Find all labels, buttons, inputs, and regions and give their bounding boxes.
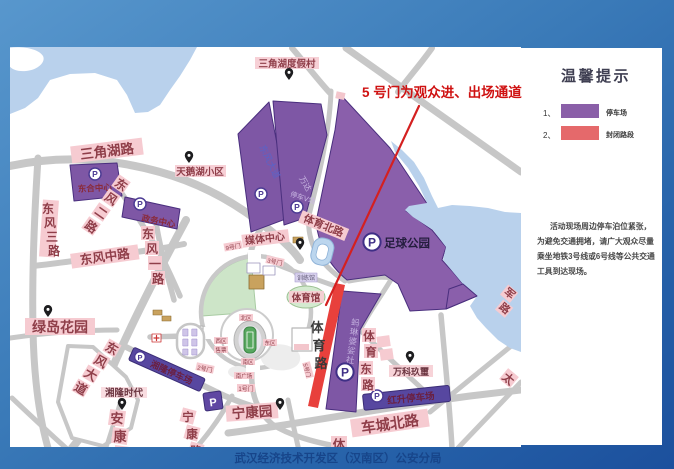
svg-text:万科玖璽: 万科玖璽 <box>392 366 429 377</box>
svg-text:西区: 西区 <box>215 338 227 345</box>
svg-text:封闭路段: 封闭路段 <box>606 130 634 139</box>
svg-text:武汉经济技术开发区（汉南区）公安分局: 武汉经济技术开发区（汉南区）公安分局 <box>235 451 442 465</box>
svg-text:温馨提示: 温馨提示 <box>561 67 631 85</box>
svg-text:5 号门为观众进、出场通道: 5 号门为观众进、出场通道 <box>362 84 522 100</box>
svg-text:天鹅湖小区: 天鹅湖小区 <box>176 166 224 178</box>
svg-text:东区: 东区 <box>264 339 276 347</box>
svg-text:湘隆时代: 湘隆时代 <box>105 387 144 399</box>
svg-text:训练馆: 训练馆 <box>297 274 315 282</box>
svg-text:南区: 南区 <box>242 358 254 366</box>
svg-text:售票: 售票 <box>215 346 227 354</box>
svg-text:绿岛花园: 绿岛花园 <box>32 319 88 335</box>
svg-text:足球公园: 足球公园 <box>384 236 430 250</box>
svg-text:宁康园: 宁康园 <box>231 403 273 422</box>
svg-text:三角湖度假村: 三角湖度假村 <box>258 58 316 70</box>
svg-text:南广场: 南广场 <box>236 372 253 380</box>
svg-text:1、: 1、 <box>543 109 555 118</box>
svg-text:体育馆: 体育馆 <box>292 292 321 304</box>
svg-text:2、: 2、 <box>543 131 555 140</box>
svg-text:停车场: 停车场 <box>606 108 627 117</box>
svg-text:1号门: 1号门 <box>238 385 253 393</box>
svg-text:北区: 北区 <box>240 314 252 322</box>
